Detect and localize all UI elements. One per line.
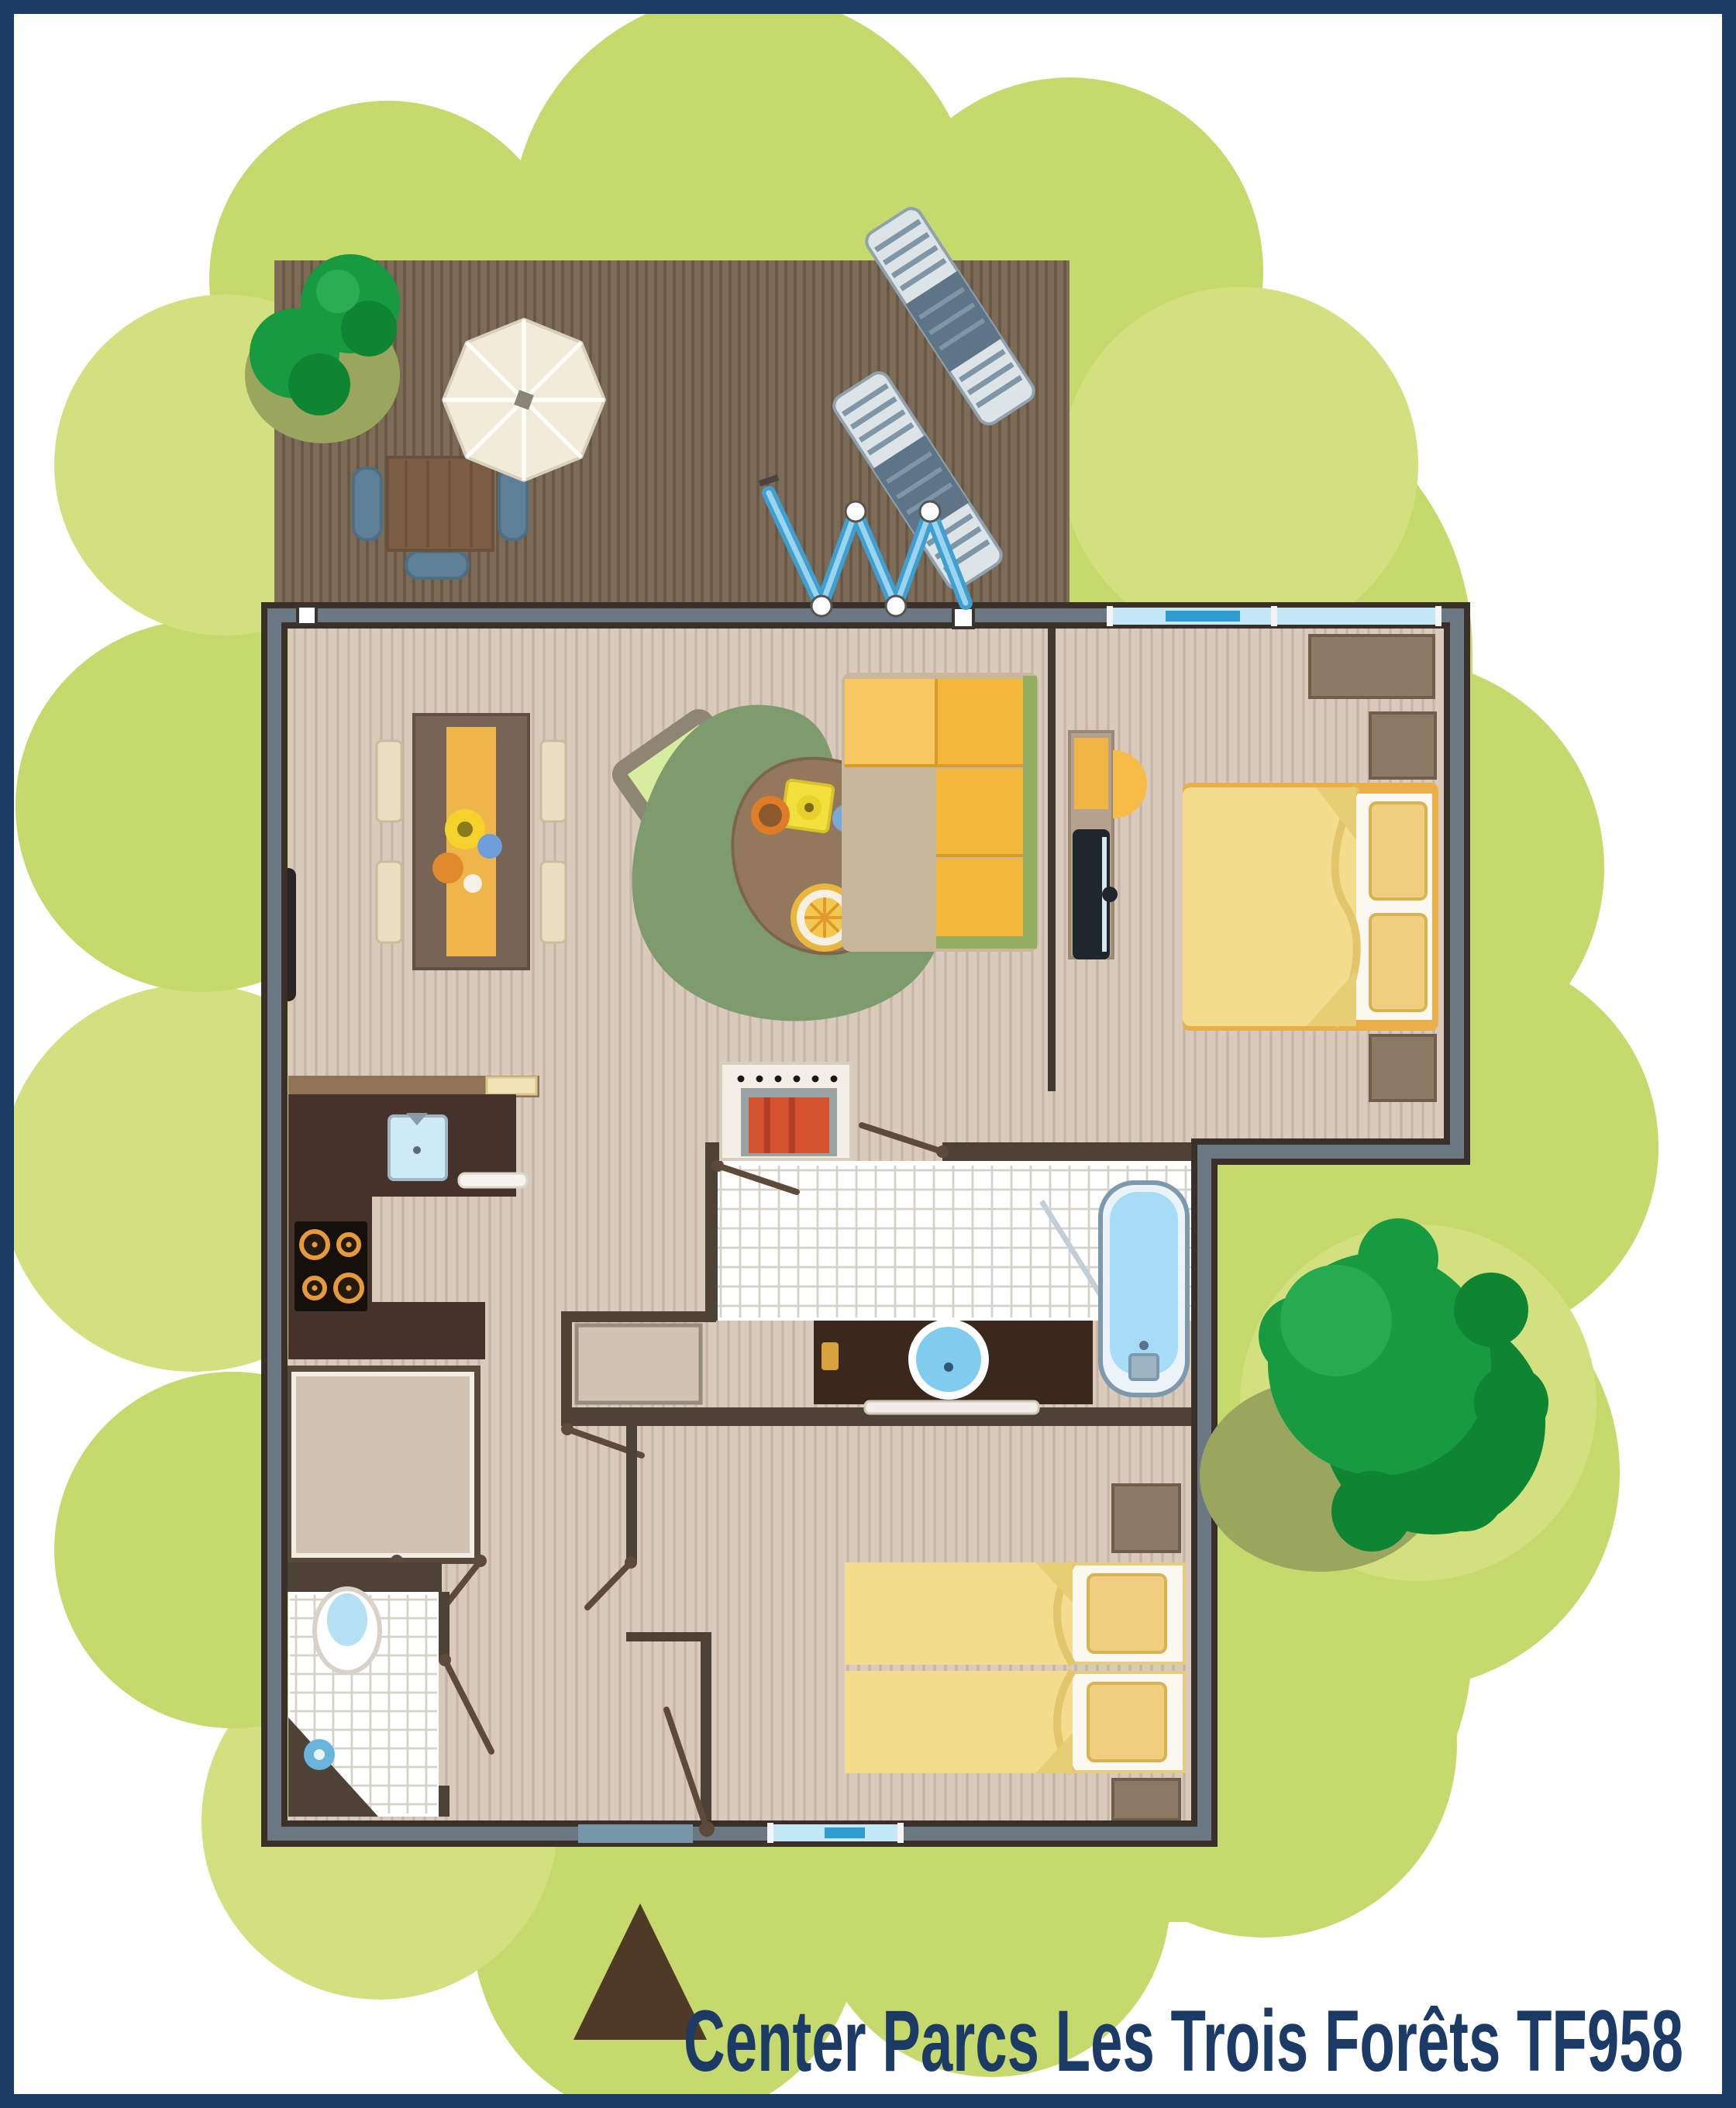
dining-chair bbox=[541, 741, 566, 821]
door-hinge-icon bbox=[474, 1555, 487, 1567]
wc-wall bbox=[439, 1786, 449, 1817]
terrace-chair bbox=[353, 468, 381, 539]
dining-chair bbox=[377, 862, 401, 942]
bathroom-cabinet bbox=[577, 1325, 701, 1403]
sofa-backrest bbox=[936, 936, 1029, 949]
door-hinge-icon bbox=[625, 1556, 637, 1569]
dish-tray bbox=[459, 1173, 527, 1187]
stove bbox=[294, 1221, 367, 1311]
sofa-cushion bbox=[936, 769, 1023, 856]
door-hinge-icon bbox=[811, 596, 832, 616]
door-hinge-icon bbox=[439, 1654, 451, 1666]
bathroom-wall bbox=[705, 1155, 718, 1321]
door-hinge-icon bbox=[711, 1159, 724, 1172]
soap-dish bbox=[821, 1342, 839, 1370]
wc-wall bbox=[439, 1592, 449, 1660]
floor-plan-canvas: Center Parcs Les Trois Forêts TF958 bbox=[0, 0, 1736, 2108]
door-hinge-icon bbox=[561, 1423, 573, 1435]
nightstand bbox=[1370, 1035, 1435, 1100]
wc-wall bbox=[285, 1562, 442, 1592]
wall-marker bbox=[953, 608, 973, 628]
nightstand bbox=[1113, 1485, 1180, 1552]
bathroom-wall bbox=[942, 1142, 1204, 1161]
bowl bbox=[477, 834, 502, 859]
bed-duvet bbox=[845, 1671, 1073, 1773]
door-hinge-icon bbox=[886, 596, 906, 616]
basin bbox=[916, 1327, 981, 1392]
terrace-chair bbox=[406, 552, 468, 578]
bed-pillow bbox=[1088, 1683, 1166, 1761]
bowl bbox=[755, 800, 786, 831]
nightstand bbox=[1370, 713, 1435, 778]
desk-bench bbox=[1074, 738, 1108, 809]
double-bed bbox=[1183, 783, 1438, 1031]
entrance-door-panel bbox=[578, 1824, 693, 1843]
single-bed bbox=[845, 1671, 1186, 1773]
door-hinge-icon bbox=[936, 1145, 949, 1158]
wall-marker bbox=[298, 606, 316, 625]
single-bed bbox=[845, 1562, 1186, 1665]
tree-icon bbox=[288, 353, 350, 415]
bathtub bbox=[1100, 1183, 1187, 1395]
window-opening-vent bbox=[1166, 611, 1240, 622]
towel-rail bbox=[865, 1401, 1038, 1414]
bed-pillow bbox=[1088, 1575, 1166, 1652]
cutting-board bbox=[487, 1077, 536, 1094]
bowl bbox=[432, 852, 463, 883]
fireplace-stove bbox=[721, 1063, 851, 1159]
door-hinge-icon bbox=[846, 501, 866, 522]
bathroom-wall bbox=[561, 1311, 716, 1322]
bed-duvet bbox=[1183, 787, 1356, 1026]
plan-caption: Center Parcs Les Trois Forêts TF958 bbox=[684, 1993, 1683, 2089]
sofa-chaise-cushion bbox=[845, 679, 936, 766]
sofa bbox=[842, 673, 1038, 952]
bed-duvet bbox=[845, 1562, 1073, 1665]
parasol bbox=[443, 319, 604, 480]
sofa-cushion bbox=[936, 859, 1023, 936]
terrace-table bbox=[387, 457, 493, 550]
nightstand bbox=[1113, 1779, 1180, 1820]
door-hinge-icon bbox=[699, 1821, 715, 1837]
bed-pillow bbox=[1370, 914, 1426, 1011]
tub-faucet bbox=[1130, 1355, 1158, 1379]
wardrobe bbox=[1310, 635, 1434, 697]
window-opening-vent bbox=[825, 1827, 865, 1838]
sofa-cushion bbox=[936, 679, 1023, 766]
toilet-water bbox=[327, 1593, 367, 1646]
partition-wall bbox=[1048, 623, 1056, 1091]
sofa-backrest bbox=[1023, 676, 1037, 949]
door-hinge-icon bbox=[920, 501, 940, 522]
bed-pillow bbox=[1370, 803, 1426, 899]
dining-chair bbox=[541, 862, 566, 942]
dining-chair bbox=[377, 741, 401, 821]
